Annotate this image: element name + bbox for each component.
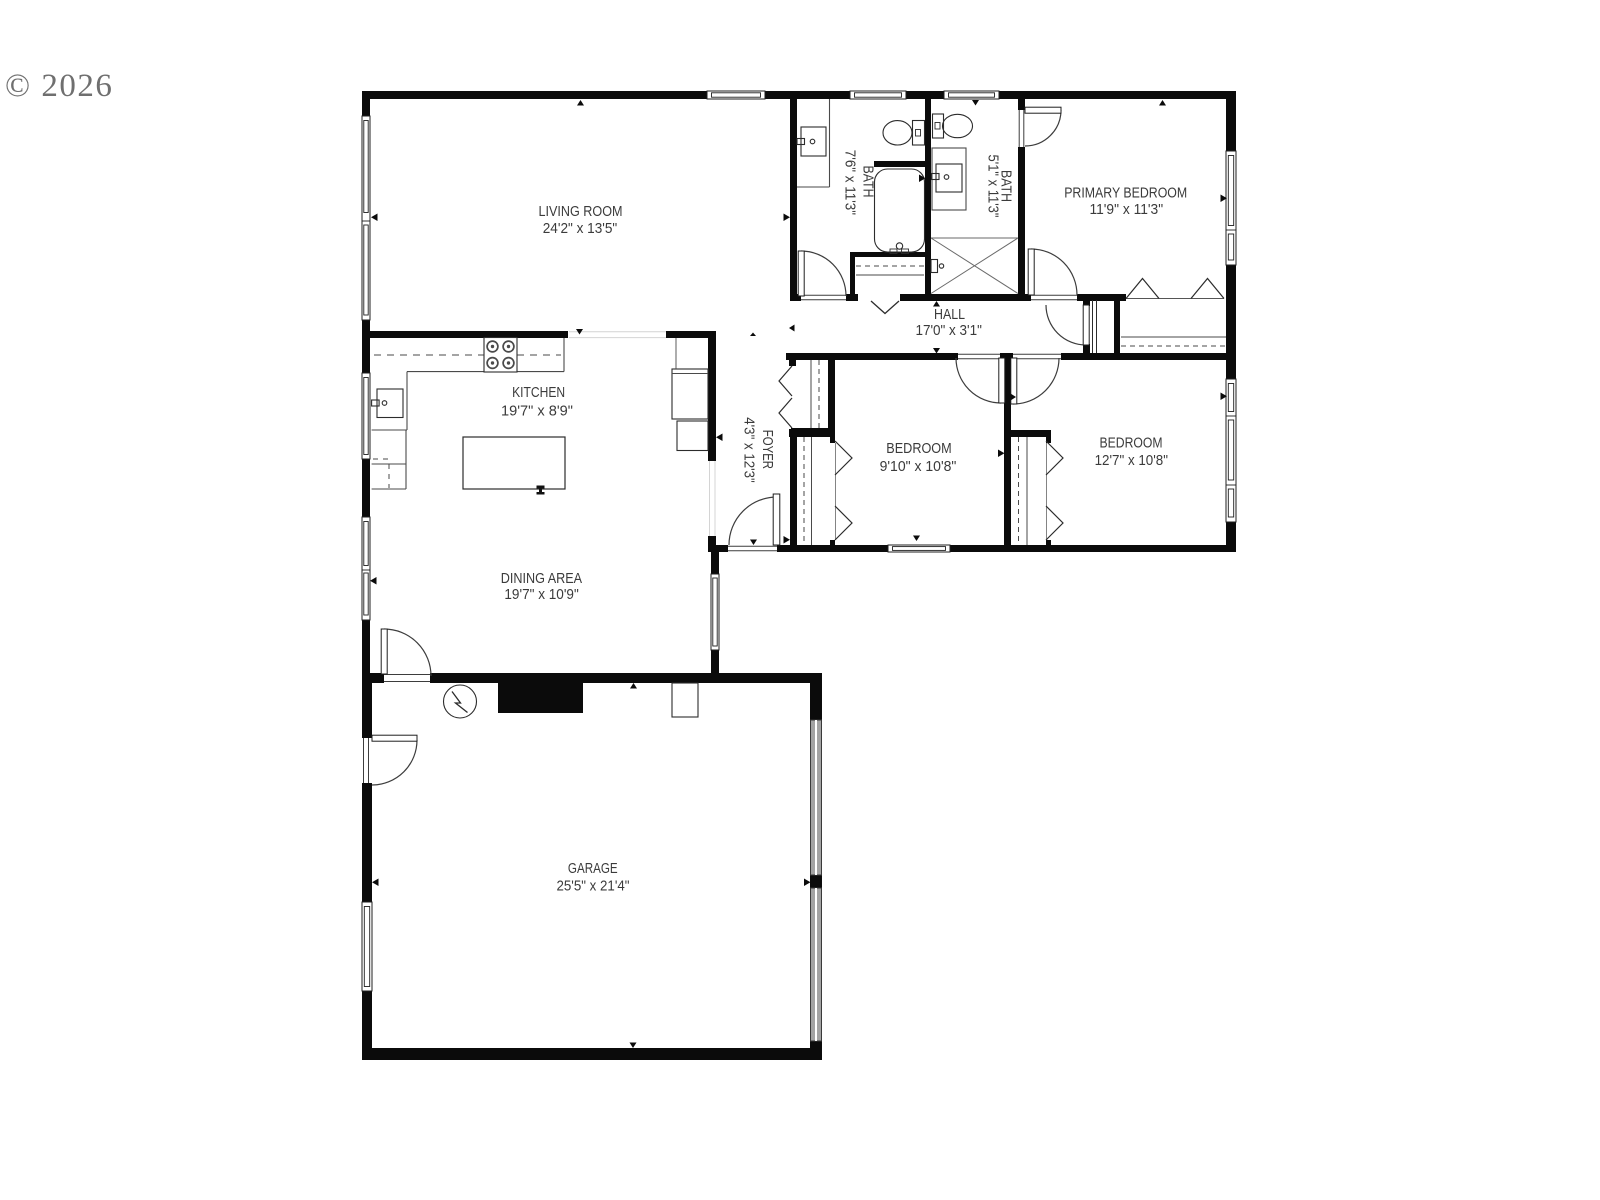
svg-text:FOYER: FOYER [759,430,776,469]
svg-text:17'0" x 3'1": 17'0" x 3'1" [915,322,982,339]
svg-text:LIVING ROOM: LIVING ROOM [539,203,623,220]
svg-text:11'9" x 11'3": 11'9" x 11'3" [1089,201,1163,218]
svg-text:PRIMARY BEDROOM: PRIMARY BEDROOM [1064,185,1187,202]
svg-text:9'10" x 10'8": 9'10" x 10'8" [880,458,957,475]
svg-text:19'7" x 10'9": 19'7" x 10'9" [504,586,578,603]
svg-text:HALL: HALL [934,306,965,323]
svg-text:24'2" x 13'5": 24'2" x 13'5" [543,220,618,237]
svg-text:7'6" x 11'3": 7'6" x 11'3" [842,150,859,215]
svg-text:© 2026: © 2026 [5,68,113,104]
svg-text:4'3" x 12'3": 4'3" x 12'3" [741,417,758,483]
svg-text:5'1" x 11'3": 5'1" x 11'3" [985,155,1002,218]
svg-text:KITCHEN: KITCHEN [512,384,565,401]
svg-text:BATH: BATH [860,166,877,198]
svg-text:DINING AREA: DINING AREA [501,570,582,587]
svg-text:12'7" x 10'8": 12'7" x 10'8" [1095,452,1168,469]
svg-text:25'5" x 21'4": 25'5" x 21'4" [557,878,630,895]
svg-text:19'7" x 8'9": 19'7" x 8'9" [501,403,573,420]
svg-text:BEDROOM: BEDROOM [1100,434,1163,451]
svg-text:GARAGE: GARAGE [568,860,618,877]
svg-text:BEDROOM: BEDROOM [886,440,951,457]
